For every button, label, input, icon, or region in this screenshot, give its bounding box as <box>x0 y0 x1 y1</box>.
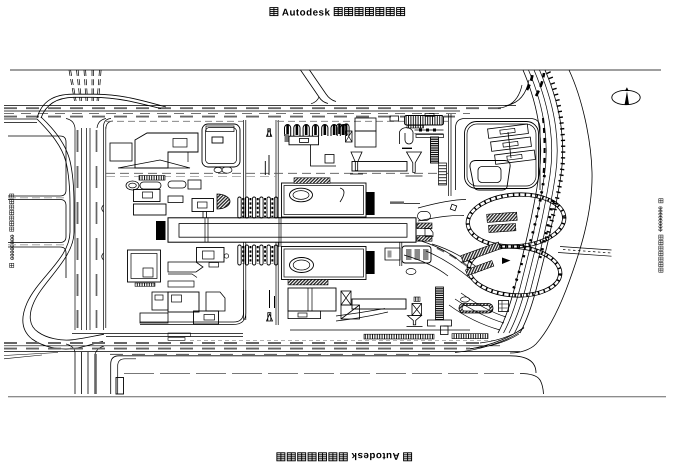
svg-text:Autodesk: Autodesk <box>351 450 400 461</box>
svg-text:Autodesk: Autodesk <box>282 8 331 19</box>
